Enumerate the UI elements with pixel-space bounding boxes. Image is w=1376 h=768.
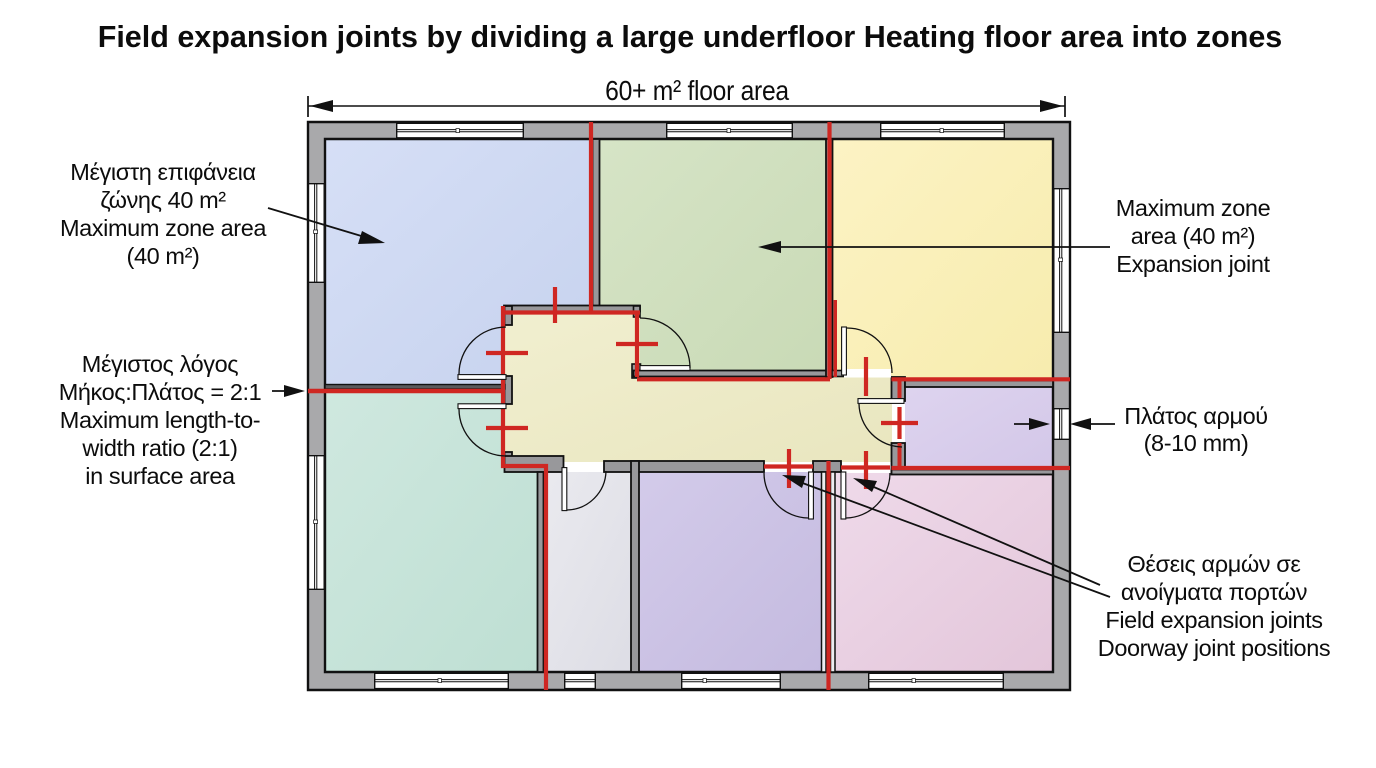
svg-text:(40 m²): (40 m²): [127, 243, 200, 269]
svg-text:Field expansion joints: Field expansion joints: [1105, 607, 1322, 633]
svg-text:ζώνης 40 m²: ζώνης 40 m²: [100, 187, 226, 213]
svg-text:Μέγιστος λόγος: Μέγιστος λόγος: [82, 351, 238, 377]
svg-text:area (40 m²): area (40 m²): [1131, 223, 1256, 249]
svg-text:Maximum zone area: Maximum zone area: [60, 215, 267, 241]
svg-text:Expansion joint: Expansion joint: [1116, 251, 1270, 277]
svg-text:Μήκος:Πλάτος = 2:1: Μήκος:Πλάτος = 2:1: [59, 379, 262, 405]
svg-text:Θέσεις αρμών σε: Θέσεις αρμών σε: [1128, 551, 1302, 577]
svg-text:Field expansion joints by divi: Field expansion joints by dividing a lar…: [98, 20, 1283, 54]
svg-text:Maximum length-to-: Maximum length-to-: [60, 407, 260, 433]
svg-text:Doorway joint positions: Doorway joint positions: [1098, 635, 1330, 661]
svg-text:Maximum zone: Maximum zone: [1116, 195, 1271, 221]
svg-text:Πλάτος αρμού: Πλάτος αρμού: [1124, 403, 1267, 429]
svg-text:width ratio (2:1): width ratio (2:1): [81, 435, 237, 461]
svg-text:Μέγιστη επιφάνεια: Μέγιστη επιφάνεια: [70, 159, 255, 185]
svg-text:ανοίγματα πορτών: ανοίγματα πορτών: [1121, 579, 1307, 605]
svg-text:(8-10 mm): (8-10 mm): [1144, 430, 1249, 456]
svg-text:in surface area: in surface area: [85, 463, 236, 489]
svg-text:60+ m² floor area: 60+ m² floor area: [605, 75, 789, 107]
